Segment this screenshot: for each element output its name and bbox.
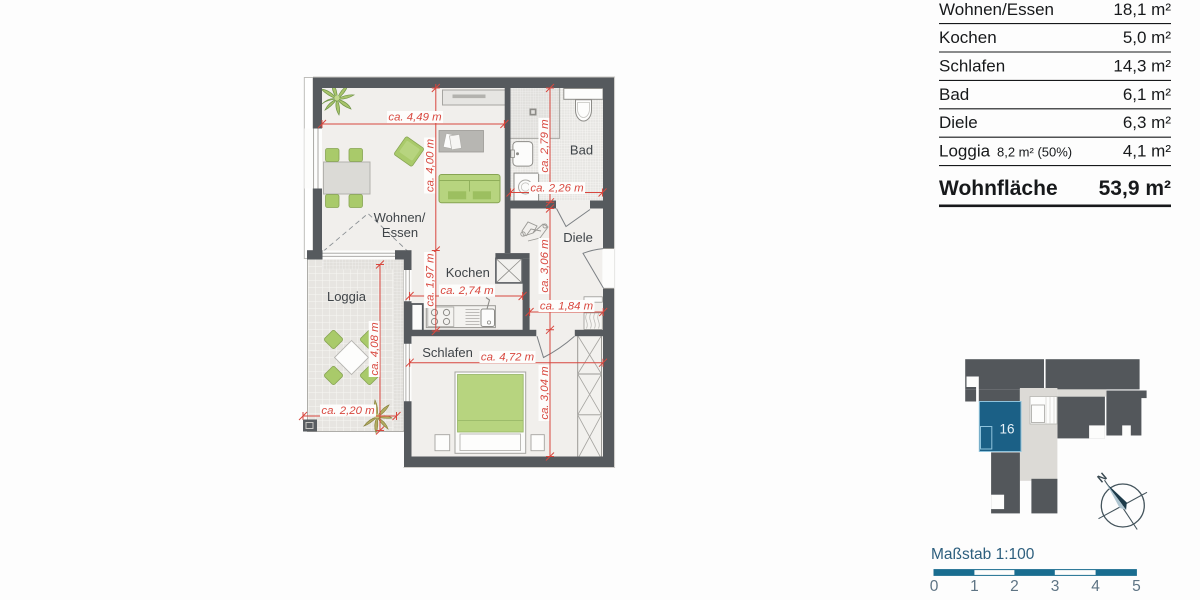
svg-text:1: 1 [970, 578, 979, 595]
svg-text:Maßstab 1:100: Maßstab 1:100 [931, 546, 1035, 563]
svg-text:18,1 m²: 18,1 m² [1113, 0, 1171, 19]
svg-text:ca. 4,08 m: ca. 4,08 m [369, 322, 381, 375]
svg-text:Loggia: Loggia [327, 289, 367, 304]
svg-text:ca. 1,84 m: ca. 1,84 m [540, 301, 593, 313]
svg-text:Essen: Essen [382, 225, 418, 240]
svg-text:ca. 3,06 m: ca. 3,06 m [539, 239, 551, 292]
svg-text:6,1 m²: 6,1 m² [1123, 85, 1172, 104]
svg-text:Kochen: Kochen [446, 265, 490, 280]
svg-text:ca. 2,74 m: ca. 2,74 m [440, 285, 493, 297]
svg-text:ca. 4,49 m: ca. 4,49 m [388, 112, 441, 124]
svg-text:5: 5 [1132, 578, 1141, 595]
svg-text:16: 16 [999, 422, 1014, 437]
svg-text:Bad: Bad [570, 143, 593, 158]
svg-text:0: 0 [930, 578, 939, 595]
svg-text:Kochen: Kochen [939, 28, 997, 47]
svg-text:3: 3 [1051, 578, 1060, 595]
svg-text:53,9 m²: 53,9 m² [1099, 177, 1171, 200]
svg-text:ca. 1,97 m: ca. 1,97 m [424, 253, 436, 306]
svg-text:ca. 4,72 m: ca. 4,72 m [481, 352, 534, 364]
svg-text:14,3 m²: 14,3 m² [1113, 56, 1171, 75]
svg-text:Schlafen: Schlafen [939, 56, 1005, 75]
svg-text:4: 4 [1091, 578, 1100, 595]
svg-text:Schlafen: Schlafen [422, 345, 473, 360]
svg-text:Diele: Diele [939, 113, 978, 132]
svg-text:Wohnen/Essen: Wohnen/Essen [939, 0, 1054, 19]
svg-text:ca. 4,00 m: ca. 4,00 m [424, 139, 436, 192]
svg-text:Bad: Bad [939, 85, 969, 104]
svg-text:ca. 2,79 m: ca. 2,79 m [539, 119, 551, 172]
svg-text:Wohnfläche: Wohnfläche [939, 177, 1058, 200]
svg-text:ca. 2,26 m: ca. 2,26 m [530, 183, 583, 195]
svg-text:5,0 m²: 5,0 m² [1123, 28, 1172, 47]
svg-text:2: 2 [1010, 578, 1019, 595]
svg-text:Diele: Diele [563, 230, 593, 245]
svg-text:Wohnen/: Wohnen/ [374, 210, 426, 225]
svg-text:8,2 m² (50%): 8,2 m² (50%) [997, 145, 1072, 160]
svg-text:Loggia: Loggia [939, 142, 991, 161]
svg-text:ca. 3,04 m: ca. 3,04 m [539, 366, 551, 419]
svg-text:4,1 m²: 4,1 m² [1123, 142, 1172, 161]
svg-text:N: N [1096, 471, 1110, 486]
svg-text:6,3 m²: 6,3 m² [1123, 113, 1172, 132]
svg-text:ca. 2,20 m: ca. 2,20 m [321, 405, 374, 417]
